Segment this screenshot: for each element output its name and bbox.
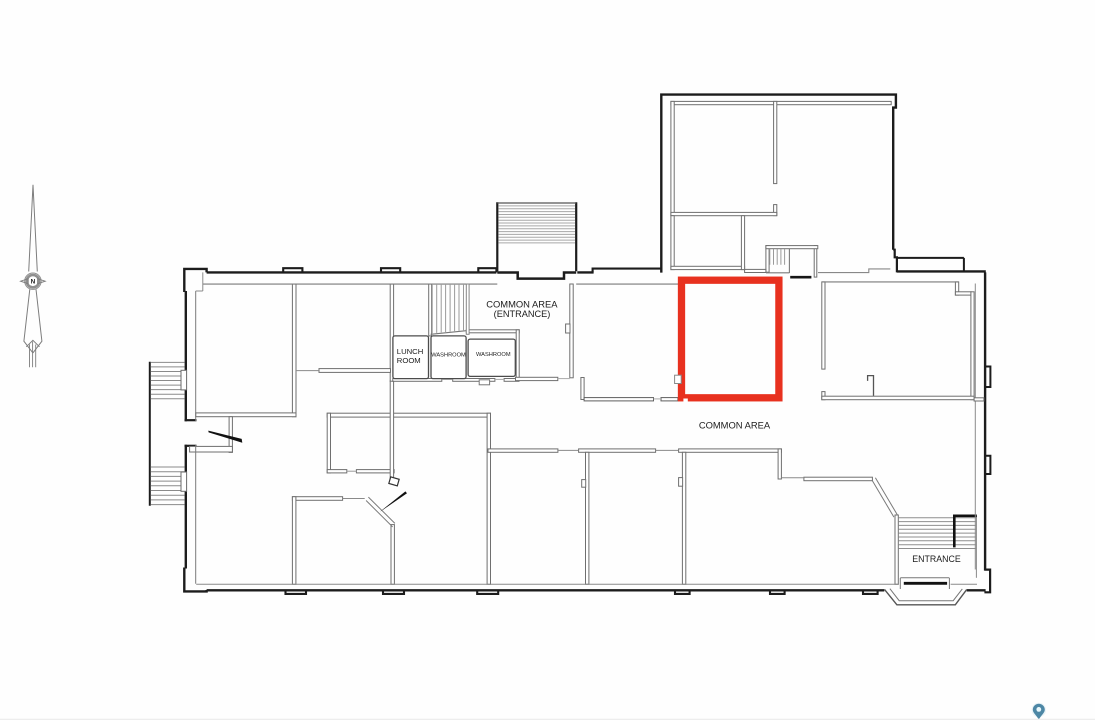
svg-text:WASHROOM: WASHROOM <box>431 353 466 359</box>
svg-text:LUNCH: LUNCH <box>397 347 423 356</box>
svg-text:N: N <box>31 279 36 286</box>
svg-text:WASHROOM: WASHROOM <box>476 352 511 358</box>
svg-text:COMMON AREA: COMMON AREA <box>699 420 771 431</box>
svg-text:ROOM: ROOM <box>397 356 421 365</box>
svg-text:(ENTRANCE): (ENTRANCE) <box>494 309 551 319</box>
svg-text:COMMON AREA: COMMON AREA <box>486 298 558 309</box>
svg-text:ENTRANCE: ENTRANCE <box>912 554 961 564</box>
